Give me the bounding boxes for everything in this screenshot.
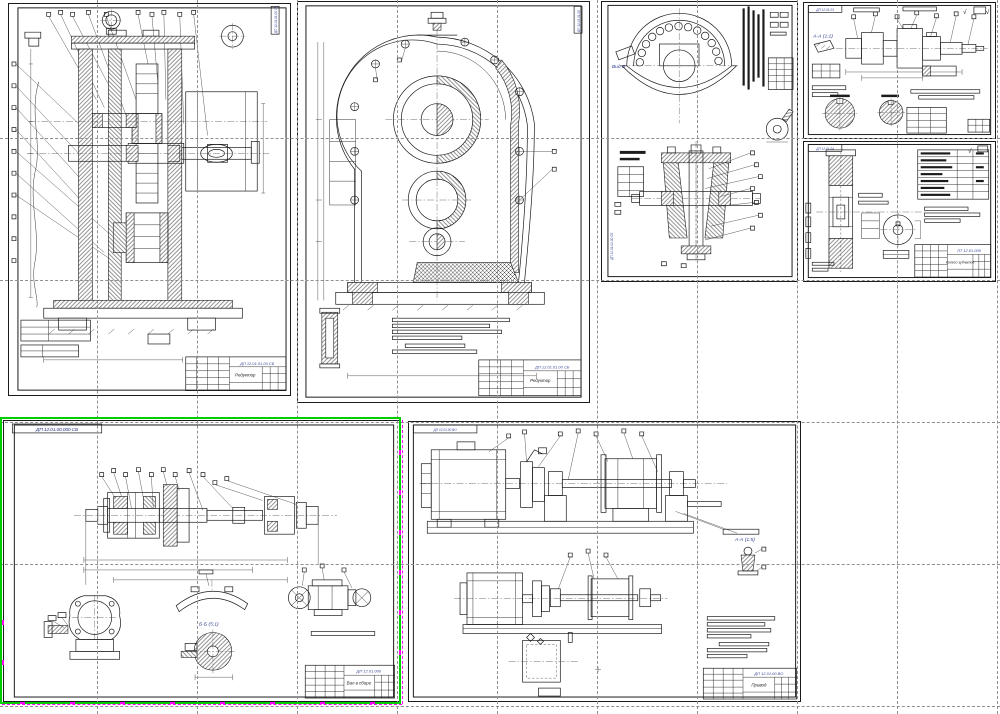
corner-doc-text: ДП 12.01.00.000 СБ — [35, 427, 79, 433]
corner-doc-box: ДП 12.01.00 ВО — [413, 425, 477, 433]
selection-grip[interactable] — [20, 702, 25, 704]
title-block: ЛТ 12.01.005 Колесо зубчатое — [915, 245, 991, 278]
reducer-section-drawing: ДП 12.01.01.00 СБ ДП 12.01.01.00 СБ Реду… — [9, 4, 290, 395]
roughness-mark-2: √ — [986, 8, 990, 16]
sheet-wheel-assembly[interactable]: Вид Б ДП 12.01.02.00 СБ — [601, 1, 798, 282]
section-label: А-А (1:1) — [812, 33, 833, 39]
sheet-drive-layout[interactable]: ДП 12.01.00 ВО — [408, 421, 801, 702]
selection-grip[interactable] — [370, 702, 375, 704]
title-block: ДП 12.01.00 ВО Привод — [703, 668, 796, 699]
doc-number-text: ДП 12.01.01.00 СБ — [274, 6, 278, 34]
grid-line-v — [297, 0, 298, 714]
grid-line-h — [0, 138, 1000, 139]
title-doc: ДП 12.01.00 ВО — [753, 671, 783, 676]
grid-line-v — [497, 0, 498, 714]
corner-doc-box: ДП 12.01.04 — [808, 144, 842, 151]
drive-layout-drawing: ДП 12.01.00 ВО — [409, 422, 800, 701]
doc-number-box: ДП 12.01.01.00 — [574, 6, 582, 33]
selection-grip[interactable] — [399, 530, 401, 535]
sheet-gear-wheel[interactable]: ДП 12.01.04 √ — [803, 141, 996, 282]
title-name: Привод — [751, 683, 767, 688]
title-doc: ДП 12.01.000 — [356, 669, 382, 674]
title-doc: ЛТ 12.01.005 — [956, 248, 982, 253]
corner-doc-text: ДП 12.01.04 — [815, 147, 834, 151]
gear-wheel-drawing: ДП 12.01.04 √ — [804, 142, 995, 281]
selection-grip[interactable] — [399, 610, 401, 615]
selection-grip[interactable] — [399, 450, 401, 455]
title-block: ДП 12.01.01.00 СБ Редуктор — [479, 360, 581, 396]
selection-grip[interactable] — [2, 620, 4, 625]
selection-grip[interactable] — [170, 702, 175, 704]
drawing-linework — [316, 12, 556, 378]
selection-grip[interactable] — [320, 702, 325, 704]
grid-line-v — [197, 0, 198, 714]
selection-grip[interactable] — [2, 660, 4, 665]
selection-grip[interactable] — [220, 702, 225, 704]
title-name: Редуктор — [235, 373, 256, 378]
grid-line-v — [897, 0, 898, 714]
cad-canvas[interactable]: ДП 12.01.01.00 СБ ДП 12.01.01.00 СБ Реду… — [0, 0, 1000, 714]
title-name: Колесо зубчатое — [946, 261, 974, 265]
selection-grip[interactable] — [120, 702, 125, 704]
selection-dash-bottom — [2, 704, 402, 705]
grid-line-v — [797, 0, 798, 714]
selection-grip[interactable] — [399, 490, 401, 495]
selection-grip[interactable] — [270, 702, 275, 704]
selection-grip[interactable] — [70, 702, 75, 704]
grid-line-v — [697, 0, 698, 714]
selection-grip[interactable] — [399, 570, 401, 575]
roughness-mark: √ — [963, 8, 967, 16]
title-name: Вал в сборе — [347, 681, 372, 686]
drawing-linework — [12, 9, 269, 362]
shaft-assembly-drawing: ДП 12.01.00.000 СБ — [4, 421, 399, 701]
title-doc: ДП 12.01.01.00 СБ — [534, 364, 570, 369]
title-name: Редуктор — [530, 378, 551, 383]
corner-doc-text: ДП 12.01.00 ВО — [433, 428, 458, 432]
doc-number-text: ДП 12.01.01.00 — [577, 10, 581, 33]
corner-doc-text: ДП 12.01.03 — [815, 8, 834, 12]
grid-line-h — [0, 280, 1000, 281]
title-block: ДП 12.01.000 Вал в сборе — [305, 665, 394, 698]
drawing-linework — [44, 468, 375, 680]
wheel-assembly-drawing: Вид Б ДП 12.01.02.00 СБ — [602, 2, 797, 281]
grid-line-h — [0, 706, 1000, 707]
sheet-shaft-drawing[interactable]: ДП 12.01.03 √ √ А-А (1:1) — [803, 2, 996, 139]
grid-line-v — [997, 0, 998, 714]
title-doc: ДП 12.01.01.00 СБ — [239, 361, 275, 366]
sheet-shaft-assembly-selected[interactable]: ДП 12.01.00.000 СБ — [3, 420, 400, 702]
reducer-cover-drawing: ДП 12.01.01.00 ДП 12.01.01.00 СБ Редукто… — [298, 2, 589, 402]
grid-line-v — [97, 0, 98, 714]
section-label: Б-Б (5:1) — [199, 622, 219, 628]
shaft-drawing: ДП 12.01.03 √ √ А-А (1:1) — [804, 3, 995, 138]
selection-dash-right — [402, 420, 403, 704]
grid-line-v — [597, 0, 598, 714]
view-label: Вид Б — [612, 64, 626, 70]
detail-label: А-А (1:5) — [734, 537, 755, 543]
title-block — [907, 107, 990, 133]
doc-number-text: ДП 12.01.02.00 СБ — [610, 233, 614, 261]
doc-number-box: ДП 12.01.01.00 СБ — [271, 6, 279, 34]
grid-line-h — [0, 422, 1000, 423]
sheet-reducer-section[interactable]: ДП 12.01.01.00 СБ ДП 12.01.01.00 СБ Реду… — [8, 3, 291, 396]
roughness-mark: √ — [968, 147, 972, 155]
grid-line-h — [0, 564, 1000, 565]
grid-line-v — [397, 0, 398, 714]
title-block: ДП 12.01.01.00 СБ Редуктор — [186, 357, 286, 391]
selection-grip[interactable] — [399, 650, 401, 655]
sheet-reducer-cover[interactable]: ДП 12.01.01.00 ДП 12.01.01.00 СБ Редукто… — [297, 1, 590, 403]
corner-doc-box: ДП 12.01.03 — [808, 5, 842, 12]
drawing-linework — [812, 7, 987, 131]
